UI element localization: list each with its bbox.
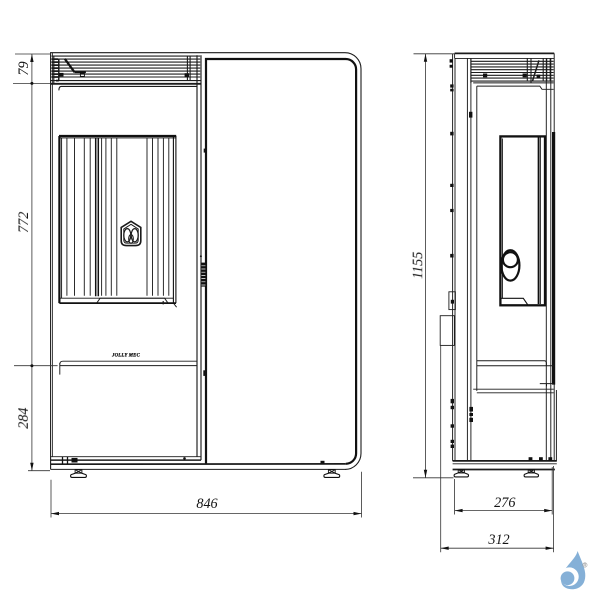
svg-text:772: 772 (16, 212, 32, 233)
svg-text:312: 312 (487, 532, 509, 548)
svg-text:JOLLY MEC: JOLLY MEC (111, 353, 141, 358)
svg-text:79: 79 (16, 61, 32, 75)
svg-text:1155: 1155 (410, 252, 426, 279)
svg-text:846: 846 (196, 496, 218, 512)
svg-text:276: 276 (494, 495, 516, 511)
svg-text:284: 284 (16, 408, 32, 429)
